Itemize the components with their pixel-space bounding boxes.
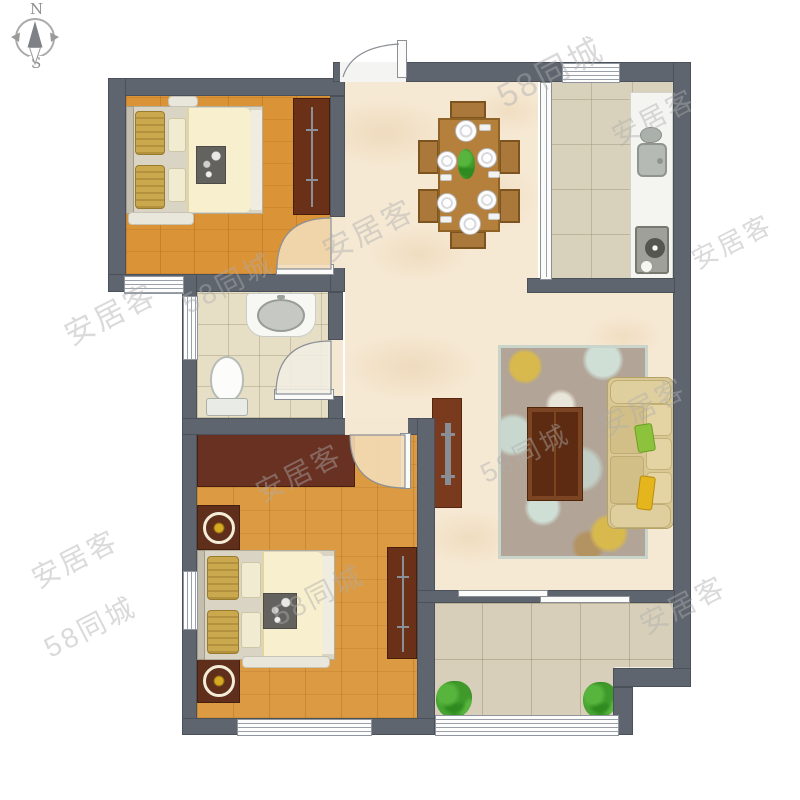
hanger-icon (397, 576, 409, 578)
bed-sheet (251, 110, 262, 210)
watermark-text: 安居客 (24, 519, 125, 597)
bedroom1-door-leaf (276, 264, 334, 275)
bedroom1-bed (126, 106, 263, 214)
bedroom2-door-leaf (400, 433, 411, 489)
plate-icon (437, 193, 457, 213)
wall-segment (673, 62, 691, 670)
bathroom-vanity (246, 293, 316, 337)
bedroom2-bed (197, 550, 335, 660)
bedside-bench (168, 96, 198, 107)
napkin (479, 124, 491, 131)
wall-segment (527, 278, 675, 293)
tv-icon (441, 433, 455, 436)
napkin (440, 216, 452, 223)
pillow (207, 610, 239, 654)
pillow (168, 118, 186, 152)
kitchen-sliding-door (540, 82, 552, 280)
wall-segment (417, 418, 435, 735)
compass-circle-icon (15, 18, 55, 58)
burner-icon (645, 238, 665, 258)
pillow (168, 168, 186, 202)
bedroom2-window (237, 719, 372, 736)
slider-track-icon (546, 85, 547, 277)
stove-knob-icon (640, 260, 653, 273)
wardrobe-rod-icon (402, 556, 404, 652)
pillow (135, 165, 165, 209)
faucet-icon (640, 127, 662, 143)
watermark-text: 58同城 (36, 586, 143, 667)
faucet-icon (277, 295, 285, 299)
bed-headboard (197, 550, 205, 660)
hanger-icon (306, 129, 318, 131)
lamp-bulb-icon (213, 522, 224, 533)
plate-icon (437, 151, 457, 171)
hanger-icon (397, 626, 409, 628)
bedroom2-wardrobe-top (197, 433, 355, 487)
coffee-table (527, 407, 583, 501)
kitchen-sink (637, 143, 667, 177)
nightstand (197, 658, 240, 703)
pillow (207, 556, 239, 600)
drain-icon (657, 158, 663, 164)
tv-stand (432, 398, 462, 508)
dining-chair (499, 189, 520, 223)
wall-segment (108, 78, 345, 96)
slider-panel (540, 596, 630, 603)
bedroom1-door-opening (330, 217, 345, 268)
bed-headboard (126, 106, 134, 214)
hanger-icon (306, 179, 318, 181)
plate-icon (477, 190, 497, 210)
bathroom-door-leaf (274, 389, 334, 400)
toilet-tank (206, 398, 248, 416)
bedroom2-side-window (183, 571, 198, 630)
floor-plan: N S 安居客58同城安居客58同城安居客安居客安居客58同城安居客58同城安居… (0, 0, 800, 800)
dining-chair (418, 189, 439, 223)
bed-end-bench (242, 656, 330, 668)
napkin (488, 213, 500, 220)
wall-segment (613, 668, 691, 687)
napkin (488, 171, 500, 178)
wall-segment (330, 96, 345, 217)
entry-door-leaf (397, 40, 407, 78)
balcony-sliding-door (458, 590, 630, 603)
kitchen-window (562, 63, 620, 83)
dining-chair (418, 140, 439, 174)
toilet-bowl (210, 356, 244, 402)
watermark-text: 安居客 (684, 204, 778, 276)
slider-panel (458, 590, 548, 597)
napkin (440, 174, 452, 181)
compass: N S (0, 0, 70, 75)
table-plant-icon (458, 149, 475, 179)
bedroom2-door-opening (345, 418, 408, 435)
pillow (135, 111, 165, 155)
coffee-table-top (532, 412, 578, 496)
dining-chair (450, 101, 486, 119)
tv-icon (441, 475, 455, 478)
lamp-icon (203, 512, 235, 544)
bathroom-window (183, 296, 198, 360)
bathroom-sink (257, 299, 305, 332)
wardrobe-rod-icon (311, 107, 313, 207)
balcony-railing (435, 715, 619, 736)
toilet (204, 356, 250, 418)
bedroom2-wardrobe-right (387, 547, 417, 659)
pillow (241, 612, 261, 648)
bed-sheet (323, 556, 334, 654)
lamp-bulb-icon (213, 675, 224, 686)
wall-segment (108, 78, 126, 292)
bed-tray (196, 146, 226, 184)
compass-north-label: N (28, 2, 45, 17)
lamp-icon (203, 665, 235, 697)
compass-south-label: S (29, 56, 43, 71)
stove (635, 226, 669, 274)
plate-icon (455, 120, 477, 142)
wall-segment (328, 292, 343, 340)
bedroom1-window (124, 276, 184, 294)
bed-end-bench (128, 212, 194, 225)
sofa (607, 377, 674, 529)
dining-chair (499, 140, 520, 174)
nightstand (197, 505, 240, 550)
bathroom-door-opening (328, 340, 343, 396)
sofa-armrest (610, 380, 671, 404)
pillow (241, 562, 261, 598)
plate-icon (477, 148, 497, 168)
plate-icon (459, 213, 481, 235)
bed-tray (263, 593, 297, 629)
bedroom1-wardrobe (293, 98, 330, 215)
